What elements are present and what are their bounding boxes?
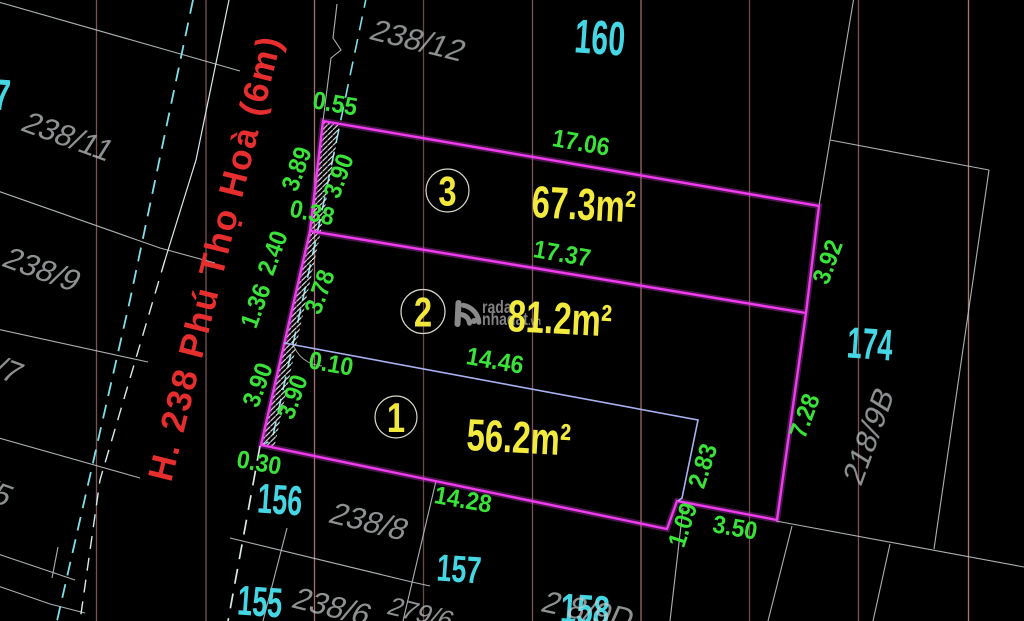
svg-text:1: 1 — [387, 394, 405, 441]
svg-text:81.2m²: 81.2m² — [506, 291, 613, 347]
svg-text:155: 155 — [236, 578, 284, 621]
svg-text:174: 174 — [846, 318, 895, 370]
svg-text:160: 160 — [573, 10, 627, 66]
svg-text:3: 3 — [438, 168, 456, 215]
svg-text:56.2m²: 56.2m² — [465, 410, 572, 466]
svg-text:67.3m²: 67.3m² — [530, 177, 637, 233]
svg-text:157: 157 — [435, 546, 482, 592]
svg-text:2: 2 — [414, 289, 432, 336]
svg-text:156: 156 — [256, 476, 304, 525]
